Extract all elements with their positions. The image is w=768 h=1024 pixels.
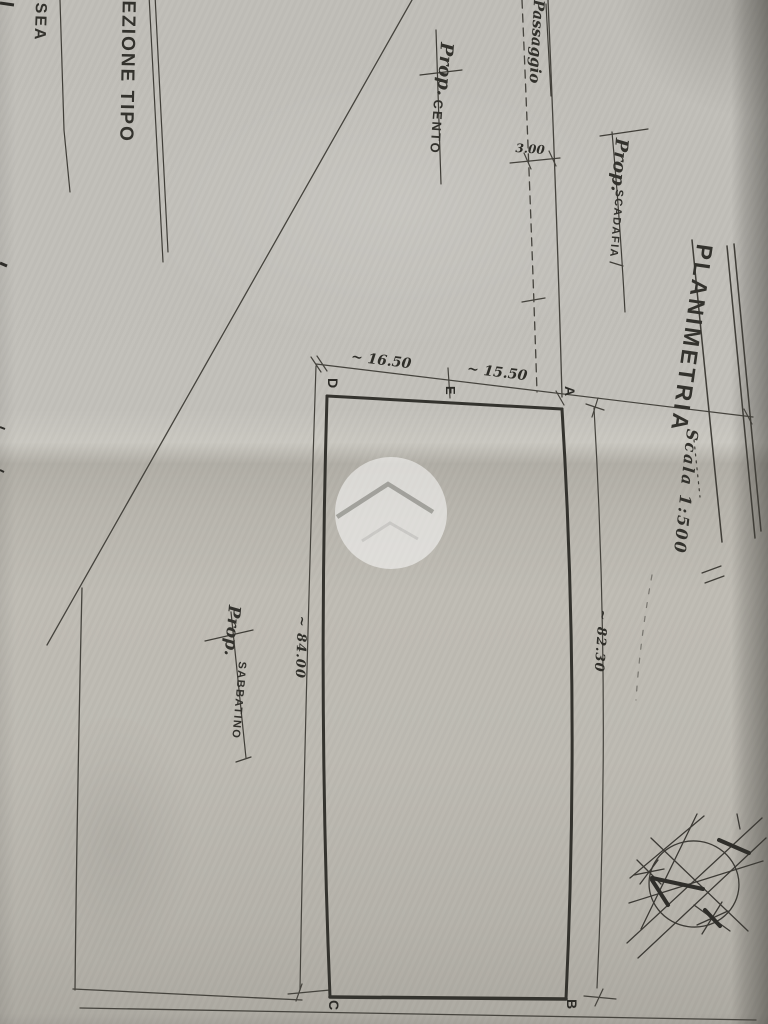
compass-spoke-3 — [630, 816, 704, 878]
passage-east-line — [548, 0, 562, 397]
scanned-plan-sheet: SEZIONE TIPO SEA Prop. CENTO Passaggio P… — [0, 0, 768, 1024]
dimension-lines — [288, 151, 753, 1006]
baseline-road-line — [80, 1008, 756, 1020]
planimetria-rule-right — [727, 244, 761, 538]
left-parcel-west-line — [75, 588, 82, 990]
dim-right-side: ~ 82.30 — [590, 609, 609, 673]
edge-fragment-label: SEA — [30, 2, 49, 41]
watermark-circle — [335, 457, 447, 569]
left-parcel-south-line — [73, 989, 302, 1000]
edge-mark — [0, 263, 7, 266]
point-label-e: E — [443, 386, 457, 395]
sea-underline — [60, 0, 70, 192]
prop-cento-name: CENTO — [427, 99, 445, 155]
point-label-a: A — [562, 386, 577, 396]
label-underlines — [60, 0, 761, 762]
edge-mark — [0, 427, 5, 429]
parcel-edge-d-c — [323, 396, 330, 997]
point-label-d: D — [325, 378, 340, 388]
dim-left-side: ~ 84.00 — [292, 616, 308, 680]
paper-edge-marks — [0, 3, 14, 472]
edge-mark — [0, 470, 4, 472]
point-label-b: B — [564, 999, 579, 1009]
dim-passage-width: 3.00 — [515, 142, 545, 157]
prop-cento-prefix: Prop. — [432, 42, 456, 97]
parcel-edge-c-b — [330, 997, 566, 999]
edge-mark — [0, 3, 14, 5]
scadafia-flourish — [600, 129, 648, 136]
scala-double-underline — [702, 566, 724, 583]
compass-outer-tick — [737, 814, 740, 829]
parcel-edge-d-a — [327, 396, 562, 409]
parcel-edge-a-b — [562, 409, 572, 999]
scala-flourish-dashes — [636, 575, 652, 700]
passaggio-label: Passaggio — [526, 0, 547, 84]
right-dim-top-tick — [586, 398, 604, 417]
prop-sabbatino-prefix: Prop. — [220, 604, 243, 656]
compass-rose — [627, 814, 766, 958]
right-dim-bottom-arrow — [584, 989, 616, 1006]
sezione-tipo-label: SEZIONE TIPO — [114, 0, 138, 143]
point-label-c: C — [326, 1000, 341, 1010]
sezione-tipo-underline — [149, 0, 168, 262]
house-chevron-watermark — [335, 457, 447, 569]
plan-drawing — [0, 0, 768, 1024]
compass-circle — [643, 835, 744, 933]
prop-scadafia-prefix: Prop. — [607, 137, 631, 192]
left-dim-bottom-arrow — [288, 984, 330, 1001]
right-dimension-line — [594, 408, 603, 988]
